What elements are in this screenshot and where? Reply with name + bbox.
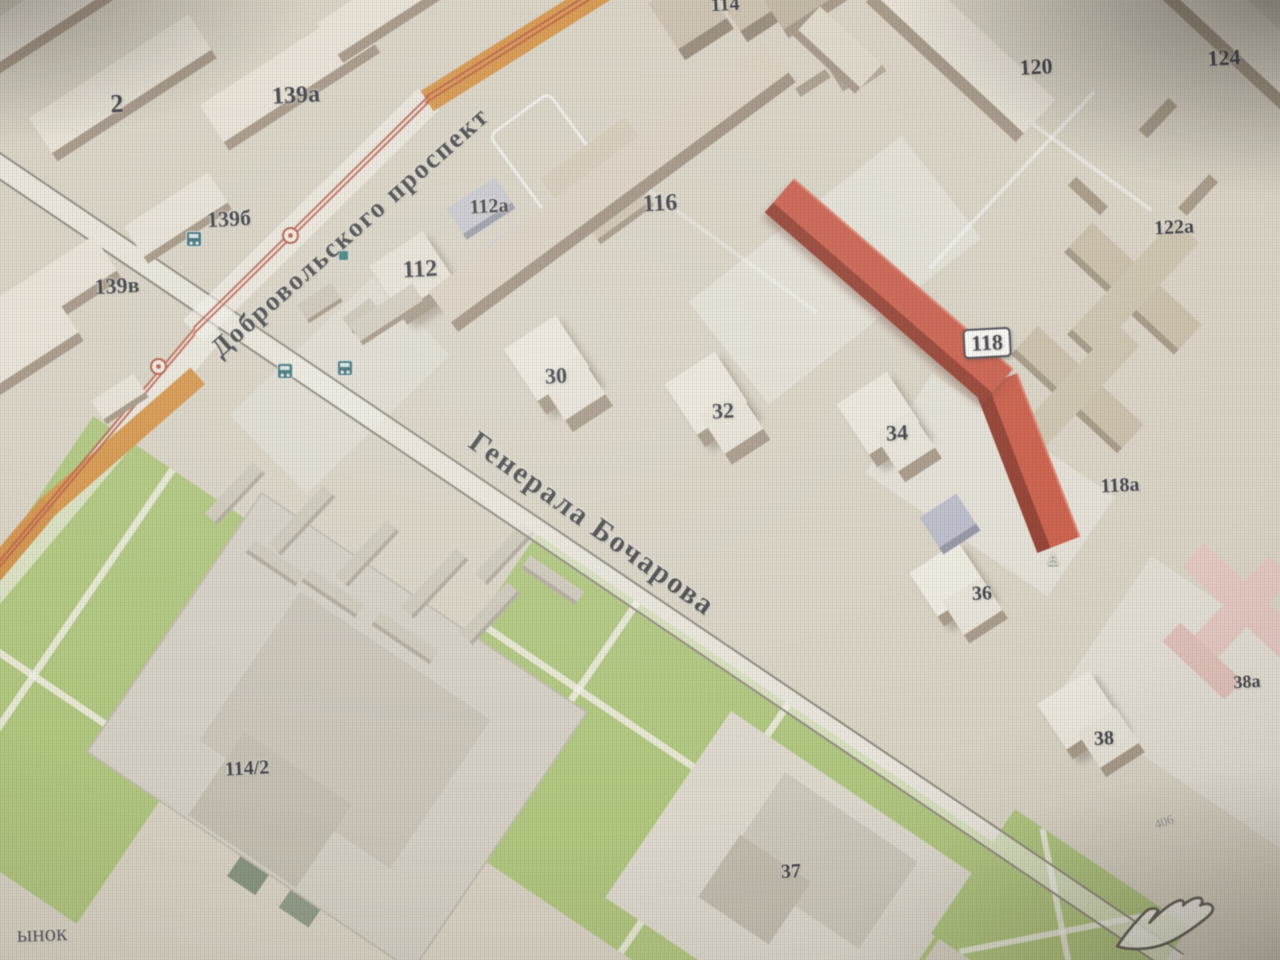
building-number-label: 38 [1093,727,1114,751]
building-number-label: 30 [544,362,567,389]
building-number-label: ынок [16,920,67,948]
building-number-label: 114/2 [224,756,270,781]
building-number-label: 124 [1207,44,1241,72]
street-name-label: Добровольского проспект [205,100,496,363]
building-number-label: 32 [711,397,734,424]
building-number-label: 112 [402,256,438,285]
building-number-label: 139а [271,81,320,110]
city-map[interactable]: ♙ 2139а139б139в112а112116303234118118а12… [0,0,1280,960]
building-number-label: 120 [1019,53,1053,81]
building-number-label: 37 [780,860,801,884]
building-number-label: 114 [710,0,740,17]
building-number-label: 139в [94,272,140,300]
hand-cursor-icon [1108,860,1228,955]
building-number-label: 139б [206,205,251,233]
building-number-label: 2 [110,89,125,120]
building-number-label: 118 [962,327,1011,359]
map-labels-layer: 2139а139б139в112а112116303234118118а1201… [0,0,1280,960]
map-photo: ♙ 2139а139б139в112а112116303234118118а12… [0,0,1280,960]
building-number-label: 36 [971,582,992,606]
building-number-label: 34 [885,419,908,446]
building-number-label: 112а [469,194,509,219]
building-number-label: 406 [1152,811,1175,832]
street-name-label: Генерала Бочарова [462,425,721,623]
building-number-label: 38а [1233,671,1261,693]
building-number-label: 118а [1100,473,1140,498]
building-number-label: 116 [642,190,678,219]
building-number-label: 122а [1153,215,1194,240]
